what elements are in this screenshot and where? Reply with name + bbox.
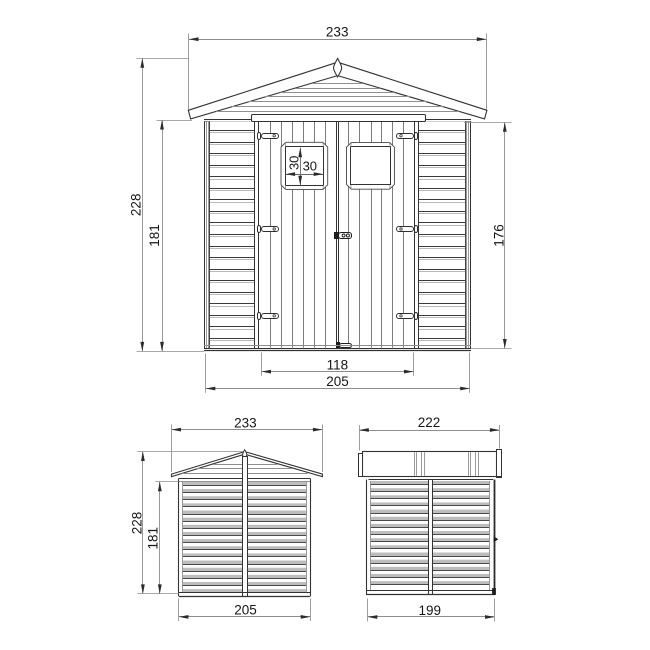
svg-text:176: 176 [491,224,506,247]
svg-text:233: 233 [326,25,349,40]
svg-text:30: 30 [286,156,301,170]
svg-text:181: 181 [147,224,162,247]
svg-text:30: 30 [303,158,317,173]
svg-text:118: 118 [327,358,349,373]
svg-text:228: 228 [130,512,145,535]
svg-text:205: 205 [326,374,349,389]
svg-text:222: 222 [418,415,441,430]
svg-text:199: 199 [419,603,442,618]
svg-text:181: 181 [146,527,161,550]
svg-text:233: 233 [234,415,257,430]
svg-text:205: 205 [234,602,257,617]
svg-text:228: 228 [129,194,144,217]
